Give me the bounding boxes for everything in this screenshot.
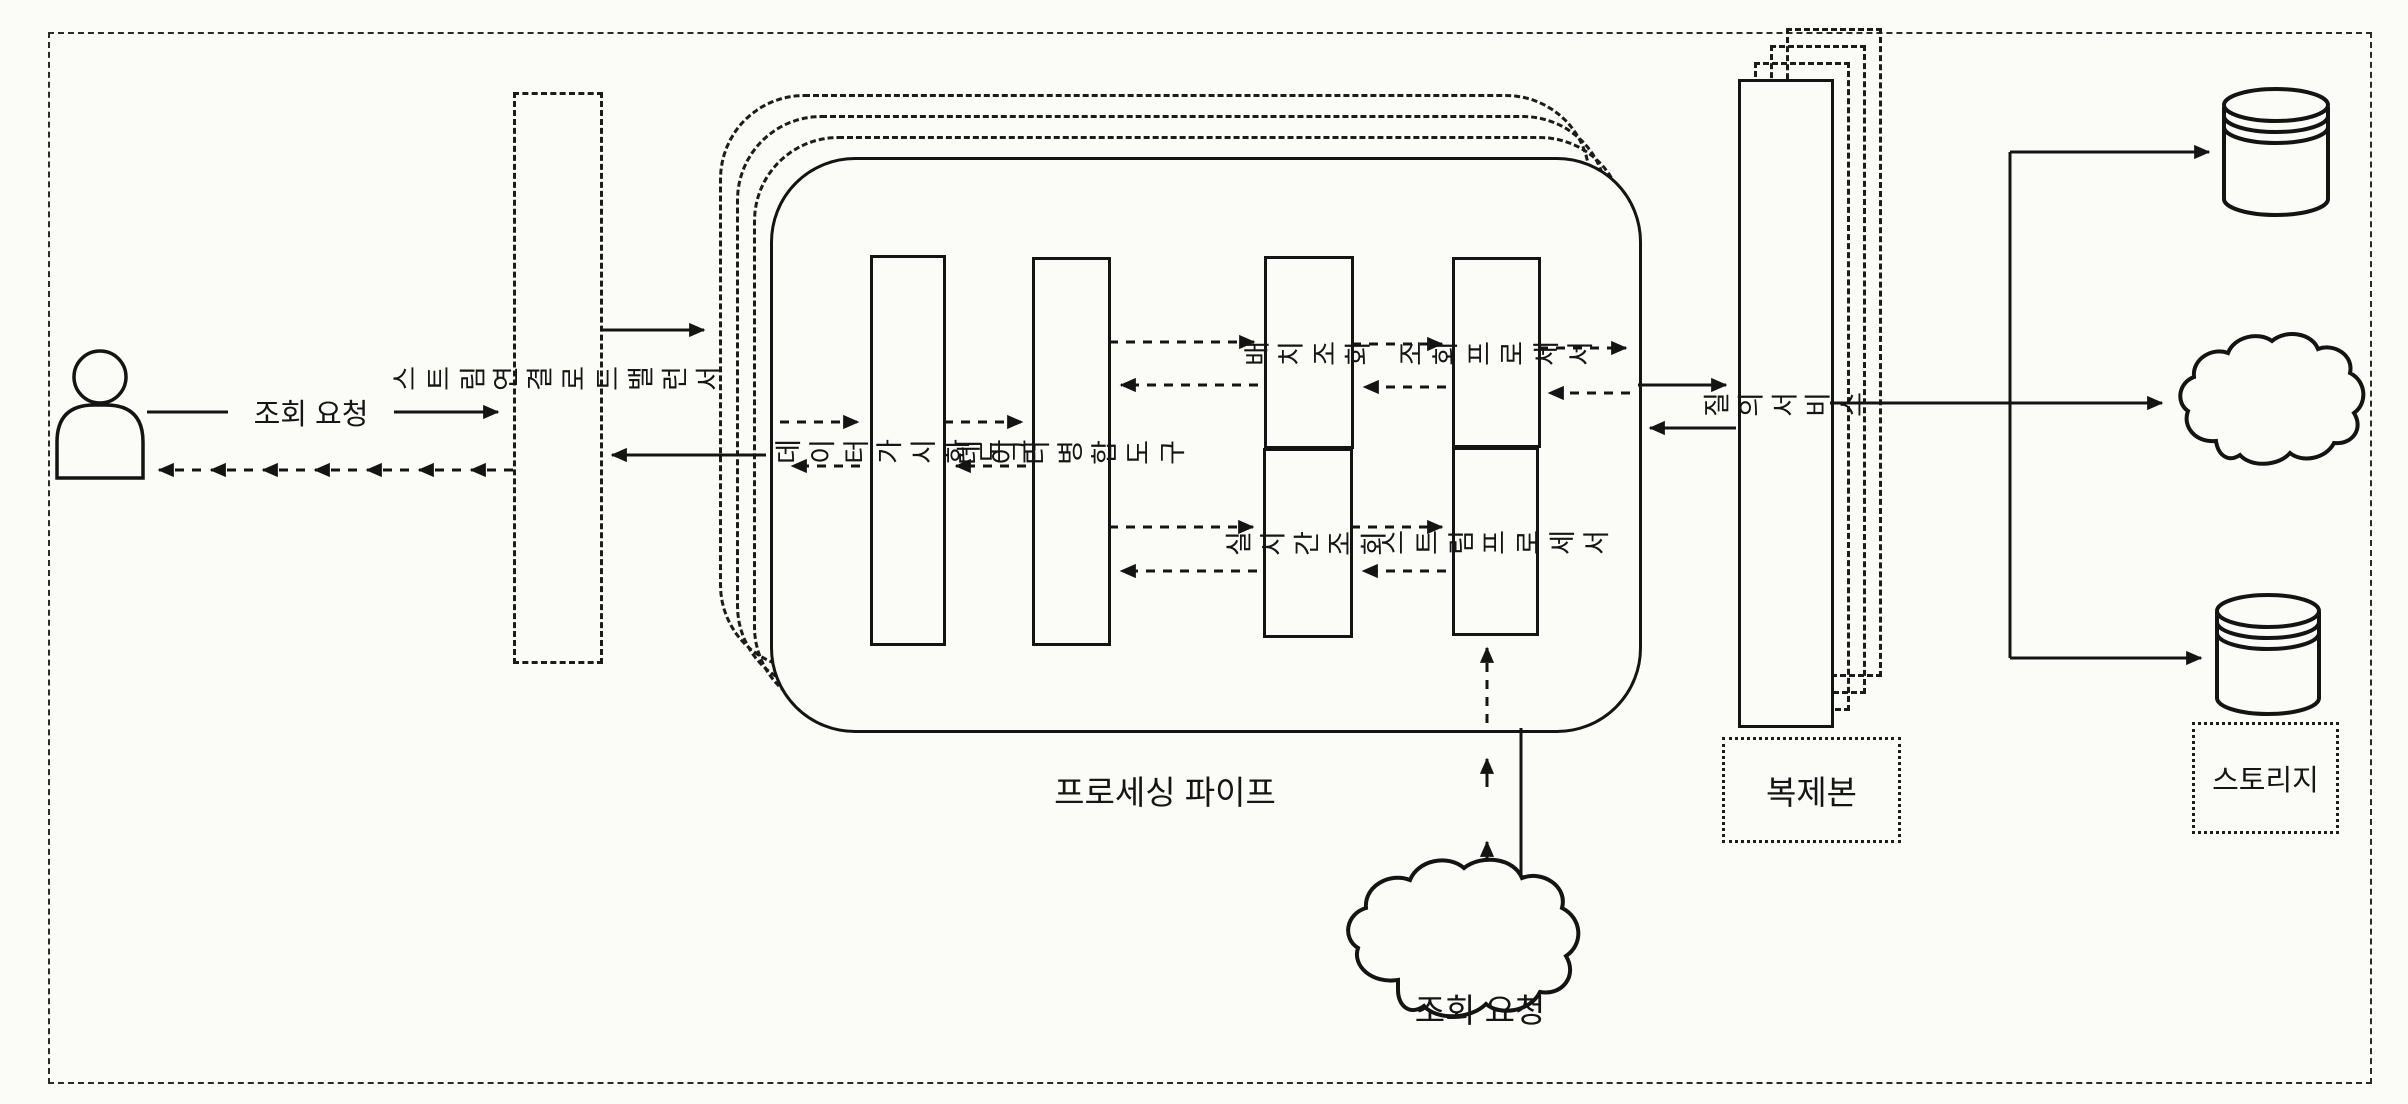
bottom-cloud-label: 조회 요청 bbox=[1380, 985, 1580, 1031]
request-label: 조회 요청 bbox=[229, 392, 393, 432]
merge-tool-box: 데이터 병합 도구 bbox=[1032, 257, 1111, 646]
load-balancer-box: 스트림 연결 로드 밸런서 bbox=[513, 92, 603, 664]
stream-processor-box: 스트림 프로세서 bbox=[1452, 447, 1539, 636]
batch-query-label: 배치 조회 bbox=[1242, 332, 1377, 374]
pipe-caption: 프로세싱 파이프 bbox=[1020, 768, 1310, 812]
load-balancer-label: 스트림 연결 로드 밸런서 bbox=[389, 357, 727, 399]
realtime-query-box: 실시간 조회 bbox=[1263, 448, 1353, 638]
query-service-box: 질의 서비스 bbox=[1738, 79, 1834, 728]
realtime-query-label: 실시간 조회 bbox=[1224, 522, 1393, 564]
storage-tag-box: 스토리지 bbox=[2192, 722, 2339, 834]
batch-query-box: 배치 조회 bbox=[1264, 256, 1354, 449]
stream-processor-label: 스트림 프로세서 bbox=[1377, 521, 1613, 562]
replica-tag-label: 복제본 bbox=[1766, 766, 1857, 814]
architecture-diagram: 스트림 연결 로드 밸런서 데이터 가시화 도구 데이터 병합 도구 배치 조회… bbox=[0, 0, 2408, 1104]
query-service-label: 질의 서비스 bbox=[1702, 381, 1871, 426]
merge-tool-label: 데이터 병합 도구 bbox=[953, 433, 1189, 470]
storage-tag-label: 스토리지 bbox=[2212, 757, 2319, 799]
visualization-tool-box: 데이터 가시화 도구 bbox=[870, 255, 946, 646]
query-processor-label: 조회 프로세서 bbox=[1395, 332, 1598, 374]
query-processor-box: 조회 프로세서 bbox=[1452, 257, 1541, 448]
replica-tag-box: 복제본 bbox=[1722, 737, 1901, 843]
